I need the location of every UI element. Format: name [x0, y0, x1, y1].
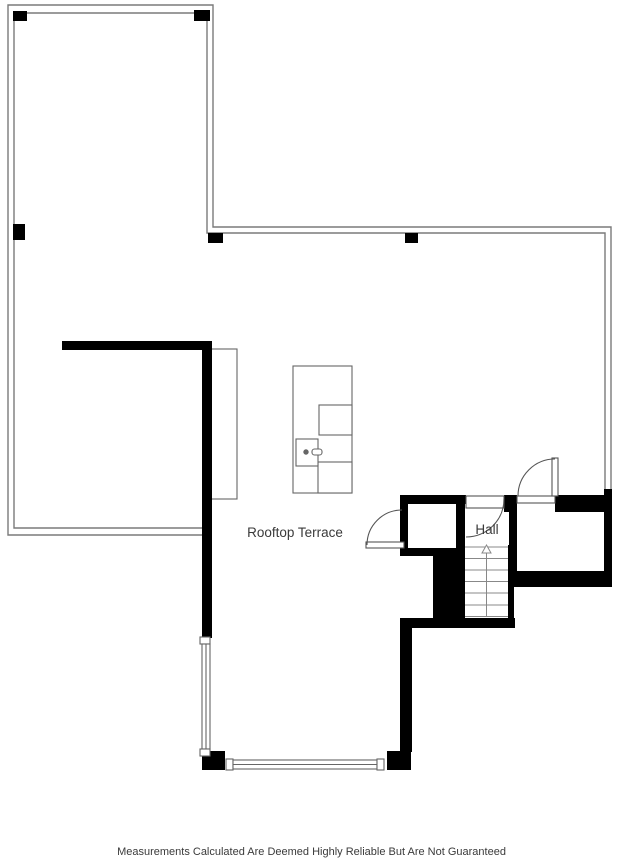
wall-corner-bottom-right	[387, 751, 411, 770]
wall-room2-left	[509, 504, 517, 580]
terrace-door	[517, 458, 558, 503]
island-appliance-bottom	[318, 462, 352, 493]
closet-door-swing-arc	[367, 510, 402, 545]
wall-stair-column	[433, 548, 465, 620]
post-junction	[208, 233, 223, 243]
post-top-left	[13, 11, 27, 21]
post-top-right	[405, 233, 418, 243]
wall-terrace-vertical	[202, 341, 212, 638]
disclaimer-text: Measurements Calculated Are Deemed Highl…	[117, 846, 506, 858]
wall-terrace-horizontal	[62, 341, 211, 350]
kitchen-island	[293, 366, 352, 493]
boundary-posts	[13, 10, 418, 243]
room-label-terrace: Rooftop Terrace	[247, 525, 343, 540]
terrace-door-sill	[517, 496, 555, 503]
wall-top-right	[555, 495, 612, 512]
post-left-mid	[13, 224, 25, 240]
floorplan-drawing: Rooftop Terrace Hall Measurements Calcul…	[0, 0, 623, 864]
terrace-door-swing-arc	[518, 459, 555, 496]
stair-up-arrow-icon	[482, 545, 491, 553]
staircase	[465, 545, 508, 617]
wall-closet-right	[456, 495, 465, 556]
bottom-window-cap-right	[377, 759, 384, 770]
bottom-window-cap-left	[226, 759, 233, 770]
closet-door	[366, 510, 404, 548]
cooktop-control-icon	[312, 449, 322, 455]
closet-door-leaf	[366, 542, 404, 548]
bottom-window	[226, 759, 384, 770]
hall-door-sill	[466, 496, 504, 508]
cooktop-burner-icon	[304, 450, 308, 454]
floorplan-page: Rooftop Terrace Hall Measurements Calcul…	[0, 0, 623, 864]
wall-room2-bottom	[509, 571, 612, 587]
left-window	[200, 637, 210, 756]
post-top-mid	[194, 10, 210, 21]
terrace-door-leaf	[552, 458, 558, 496]
island-appliance-top	[319, 405, 352, 435]
wall-room-right	[400, 628, 412, 752]
room-label-hall: Hall	[475, 522, 498, 537]
left-window-cap-top	[200, 637, 210, 644]
left-window-cap-bottom	[200, 749, 210, 756]
